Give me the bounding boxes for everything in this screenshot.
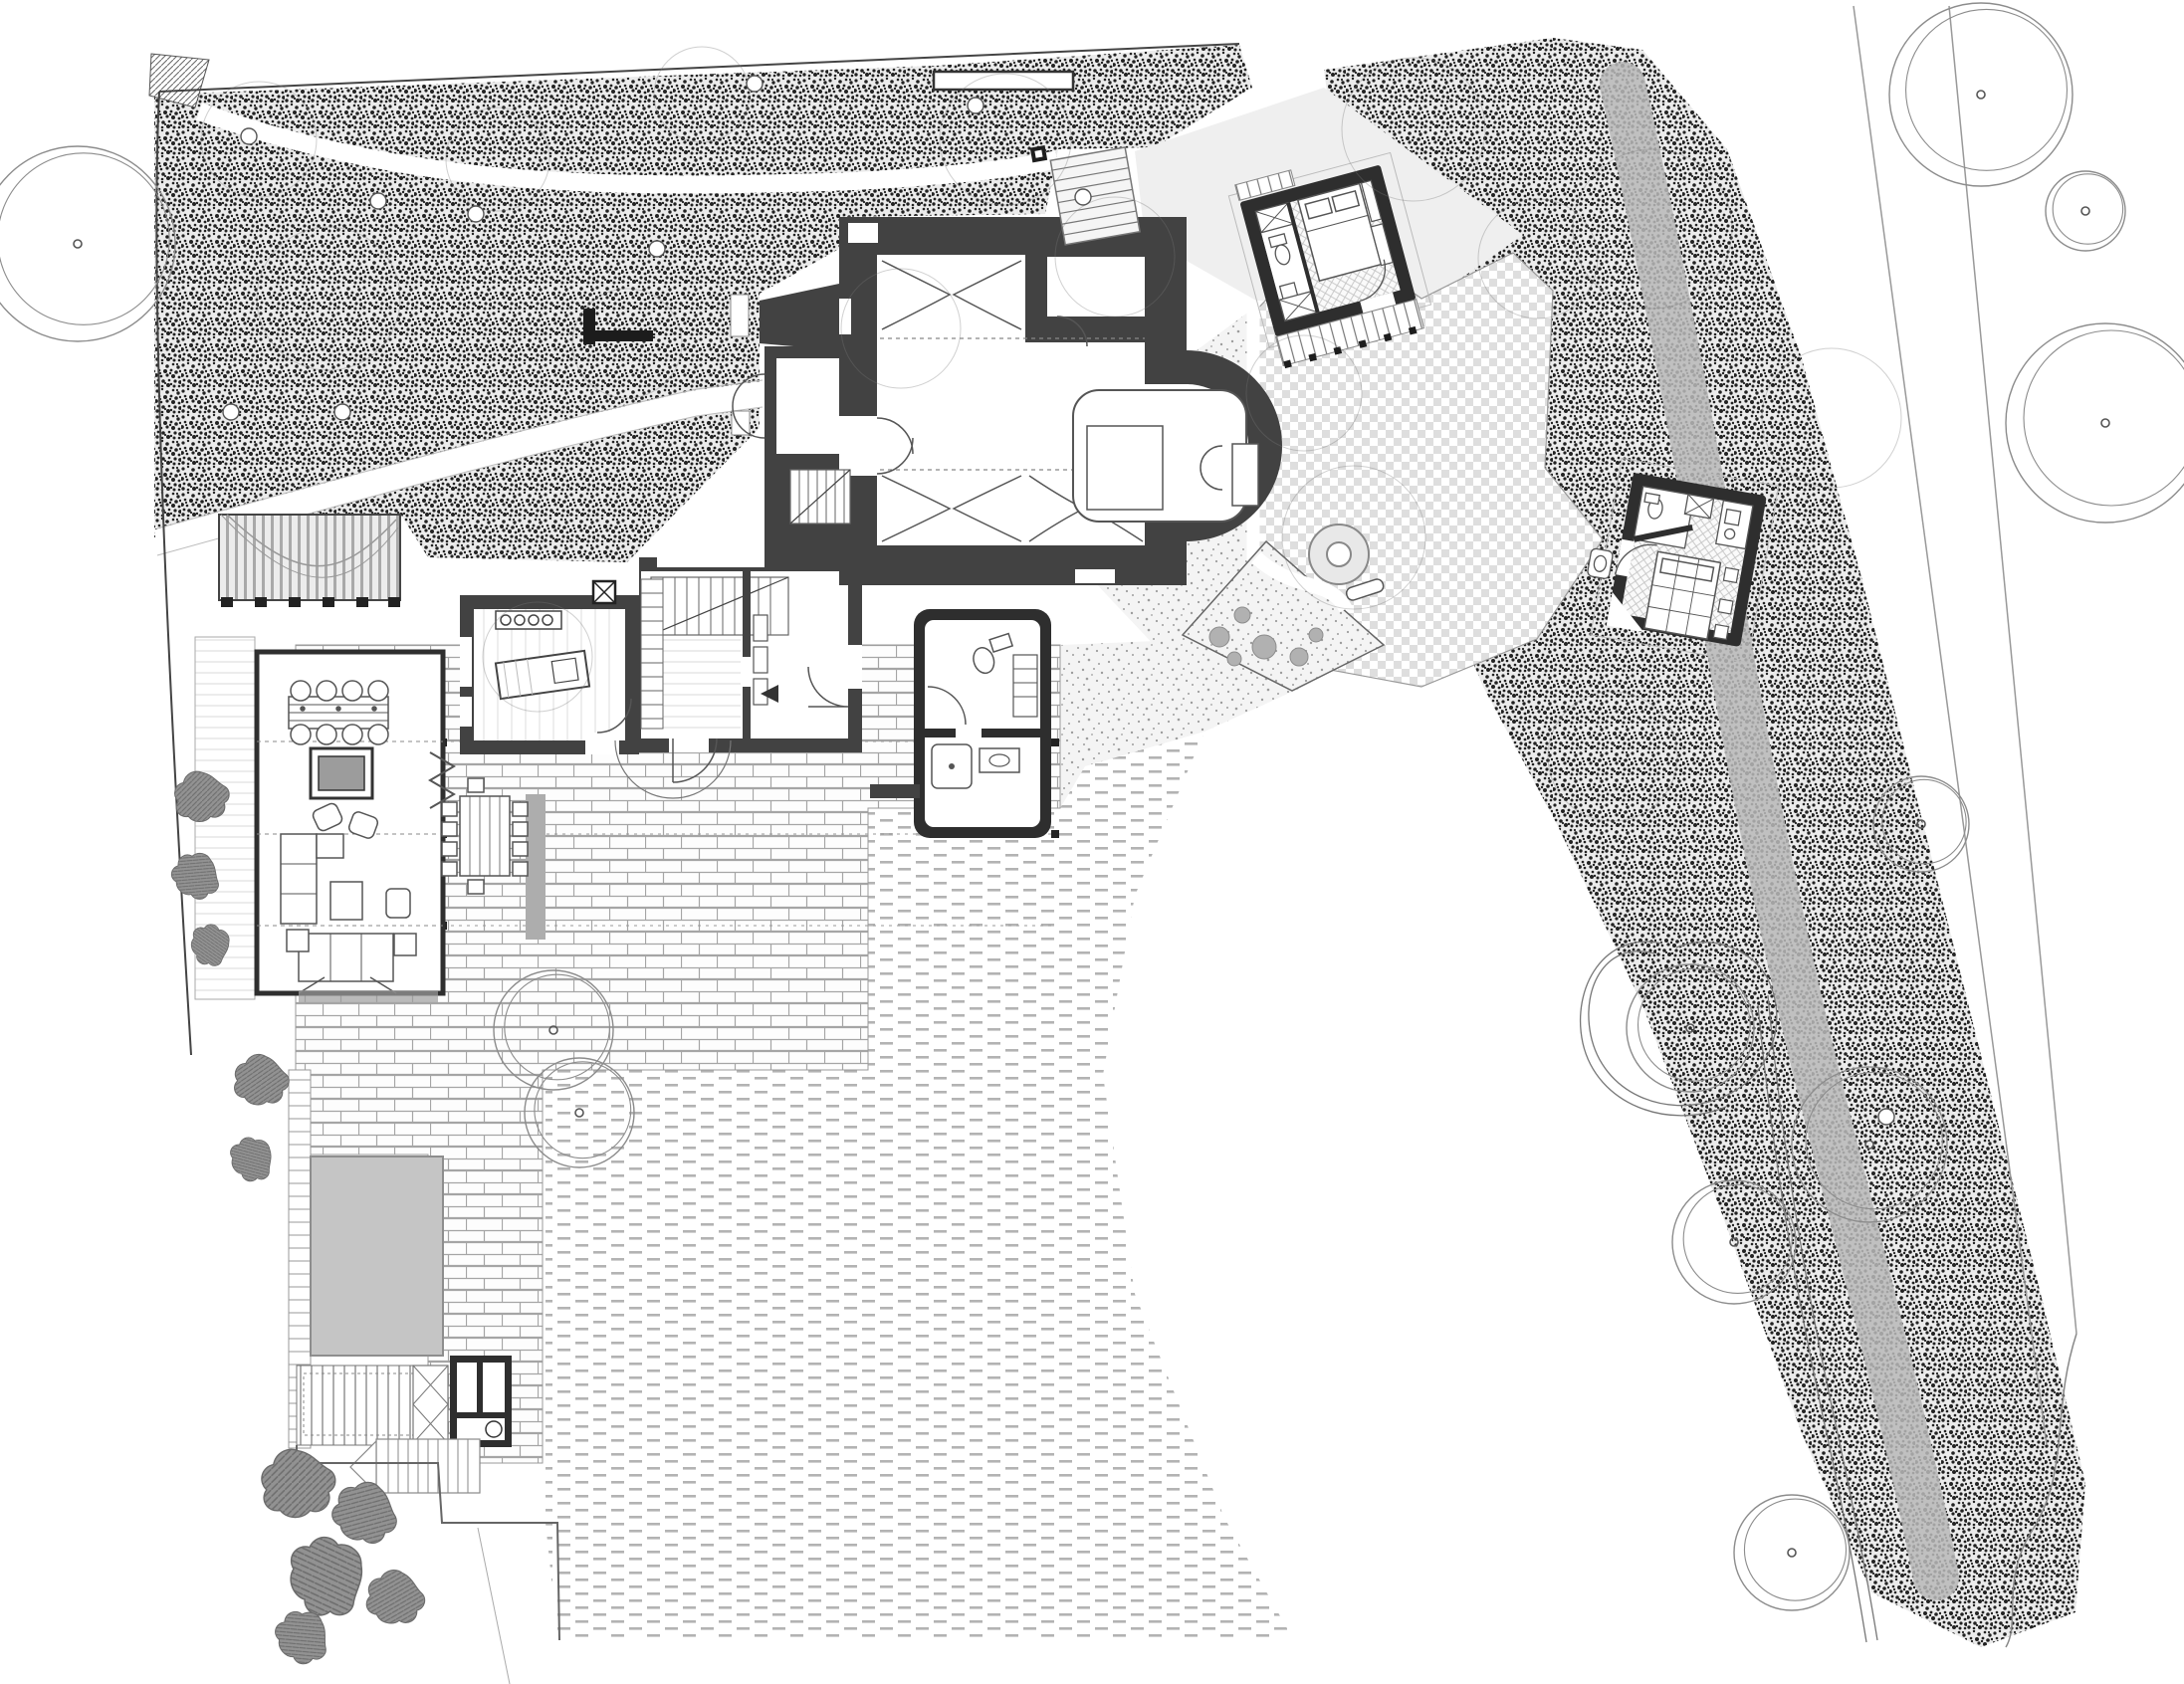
flue-box bbox=[593, 581, 615, 603]
vanity-sink bbox=[980, 748, 1019, 772]
hall-partition bbox=[743, 571, 751, 738]
retaining-wall-cap bbox=[934, 72, 1073, 90]
apse-furniture bbox=[1073, 390, 1258, 522]
kitchen-block bbox=[460, 581, 639, 754]
terrace-planter bbox=[526, 794, 546, 940]
cabin-east-outdoor-wc bbox=[1587, 548, 1614, 579]
media-unit bbox=[311, 748, 372, 798]
pool-plant-room bbox=[450, 1356, 512, 1447]
armchair bbox=[386, 889, 410, 918]
garden-wall-stub bbox=[870, 784, 920, 798]
deck-trellis bbox=[413, 1366, 448, 1443]
pergola bbox=[219, 515, 400, 607]
chapel-stair bbox=[790, 470, 850, 524]
swimming-pool bbox=[311, 1157, 443, 1356]
side-stair bbox=[641, 579, 663, 729]
cabin-east-bed bbox=[1644, 551, 1721, 639]
threshold-band bbox=[299, 990, 438, 1002]
towel-shelf bbox=[1013, 655, 1037, 717]
site-plan-canvas bbox=[0, 0, 2184, 1684]
chapel-annex bbox=[1047, 257, 1145, 316]
shower bbox=[932, 744, 972, 788]
cooktop bbox=[496, 611, 561, 629]
site-plan-drawing bbox=[0, 0, 2184, 1684]
mudroom-shelving bbox=[754, 615, 767, 705]
coffee-table bbox=[330, 882, 362, 920]
